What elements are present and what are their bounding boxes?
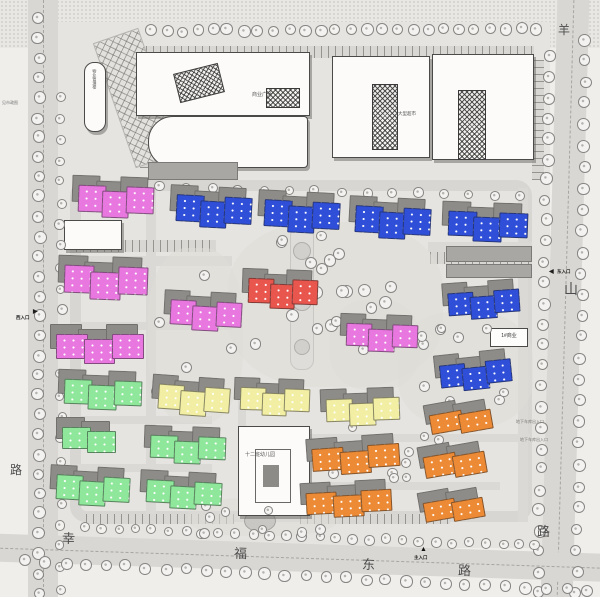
tree-icon	[312, 323, 324, 335]
tree-icon	[366, 302, 377, 313]
tree-icon	[481, 538, 491, 548]
tree-icon	[542, 132, 555, 145]
tree-icon	[579, 161, 591, 173]
tree-icon	[573, 374, 585, 386]
building-unit	[88, 385, 117, 411]
tree-icon	[423, 24, 435, 36]
tree-icon	[581, 585, 593, 597]
tree-icon	[431, 537, 442, 548]
tree-icon	[533, 567, 545, 579]
aux-block	[446, 264, 532, 278]
residential-row	[248, 278, 317, 308]
tree-icon	[161, 564, 173, 576]
tree-icon	[413, 187, 424, 198]
supermarket-label: 大型超市	[398, 112, 416, 117]
building-unit	[102, 477, 130, 503]
tree-icon	[220, 566, 232, 578]
tree-icon	[536, 444, 548, 456]
road-char-bottom-1: 幸	[62, 532, 75, 545]
residential-row	[263, 199, 338, 233]
tree-icon	[499, 540, 508, 549]
residential-row	[77, 185, 152, 218]
building-unit	[484, 358, 513, 384]
tree-icon	[55, 520, 65, 530]
tree-icon	[408, 24, 420, 36]
tree-icon	[573, 482, 584, 493]
tree-icon	[459, 579, 471, 591]
residential-row	[175, 194, 250, 228]
road-char-right-3: 路	[537, 525, 550, 538]
tree-icon	[577, 289, 588, 300]
tree-icon	[420, 577, 431, 588]
building-unit	[56, 334, 88, 359]
tree-icon	[31, 388, 43, 400]
tree-icon	[330, 533, 340, 543]
tree-icon	[32, 527, 44, 539]
tree-icon	[419, 381, 430, 392]
tree-icon	[258, 525, 267, 534]
tree-icon	[535, 401, 548, 414]
building-unit	[224, 197, 253, 225]
tree-icon	[500, 580, 512, 592]
road-char-bottom-3: 东	[362, 558, 375, 571]
tree-icon	[577, 247, 589, 259]
supermarket-skylight	[458, 90, 486, 160]
aux-block	[148, 162, 238, 180]
tree-icon	[453, 332, 464, 343]
building-unit	[215, 302, 243, 328]
tree-icon	[55, 114, 65, 124]
tree-icon	[193, 24, 204, 35]
road-char-left-1: 路	[10, 464, 22, 476]
building-unit	[112, 334, 144, 359]
tree-icon	[268, 26, 279, 37]
tree-icon	[182, 526, 192, 536]
road-char-right-2: 山	[564, 282, 578, 296]
building-unit	[284, 388, 310, 412]
residential-row	[447, 289, 519, 320]
tree-icon	[580, 77, 591, 88]
tree-icon	[479, 579, 491, 591]
tree-icon	[286, 309, 299, 322]
building-unit	[84, 339, 116, 364]
tree-icon	[573, 353, 586, 366]
tree-icon	[55, 157, 65, 167]
tree-icon	[32, 151, 44, 163]
kindergarten-building: 十二班幼儿园	[238, 426, 310, 516]
municipal-note: 见市政图	[2, 100, 18, 106]
site-plan: 物业管理楼 商业广场 大型超市 十二班幼儿园 1#商业 幸 福 东 路 羊 山 …	[0, 0, 600, 597]
aux-block	[446, 246, 532, 262]
tree-icon	[34, 588, 45, 597]
tree-icon	[33, 449, 46, 462]
building-unit	[113, 380, 142, 406]
clubhouse	[64, 220, 122, 250]
tree-icon	[226, 343, 237, 354]
tree-icon	[532, 503, 545, 516]
residential-row	[62, 427, 114, 451]
tree-icon	[285, 24, 296, 35]
garage-entry-note: 地下车库出入口	[520, 437, 548, 443]
building-unit	[493, 288, 521, 313]
tree-icon	[250, 338, 261, 349]
residential-row	[56, 334, 142, 362]
tree-icon	[544, 50, 555, 61]
tree-icon	[364, 535, 374, 545]
tree-icon	[437, 324, 446, 333]
tree-icon	[447, 539, 457, 549]
tree-icon	[490, 191, 500, 201]
tree-icon	[61, 558, 73, 570]
tree-icon	[154, 317, 165, 328]
tree-icon	[154, 181, 164, 191]
tree-icon	[361, 575, 373, 587]
tree-icon	[54, 219, 65, 230]
tree-icon	[574, 394, 586, 406]
tree-icon	[230, 528, 241, 539]
tree-icon	[572, 437, 583, 448]
commercial-label-box: 1#商业	[490, 328, 528, 347]
tree-icon	[336, 285, 349, 298]
tree-icon	[376, 23, 388, 35]
building-unit	[360, 489, 392, 512]
building-unit	[373, 397, 401, 421]
building-unit	[194, 482, 223, 507]
tree-icon	[164, 527, 173, 536]
kindergarten-label: 十二班幼儿园	[245, 453, 275, 459]
tree-icon	[34, 53, 46, 65]
tree-icon	[464, 537, 473, 546]
building-unit	[90, 271, 121, 300]
plaza-label: 商业广场	[252, 93, 272, 99]
tree-icon	[281, 530, 292, 541]
tree-icon	[96, 524, 107, 535]
tree-icon	[468, 24, 479, 35]
tree-icon	[56, 135, 67, 146]
tree-icon	[417, 331, 427, 341]
building-unit	[87, 431, 116, 453]
tree-icon	[32, 369, 44, 381]
tree-icon	[529, 540, 539, 550]
tree-icon	[500, 23, 512, 35]
tree-icon	[315, 25, 327, 37]
tree-icon	[33, 130, 46, 143]
tree-icon	[33, 72, 45, 84]
tree-icon	[579, 54, 591, 66]
tree-icon	[577, 140, 590, 153]
residential-row	[64, 379, 141, 410]
tree-icon	[542, 154, 555, 167]
tree-icon	[538, 276, 550, 288]
tree-icon	[305, 257, 317, 269]
tree-icon	[358, 284, 371, 297]
tree-icon	[575, 268, 587, 280]
tree-icon	[361, 23, 374, 36]
tree-icon	[57, 304, 68, 315]
tree-icon	[34, 231, 47, 244]
tree-icon	[514, 539, 524, 549]
management-label: 物业管理楼	[92, 69, 96, 89]
residential-row	[326, 397, 399, 425]
retail-block-lower	[148, 116, 308, 168]
supermarket-skylight	[372, 84, 398, 150]
east-entrance-label: 东入口	[557, 269, 571, 275]
garden-circle	[294, 339, 310, 355]
tree-icon	[577, 310, 588, 321]
tree-icon	[278, 570, 290, 582]
residential-row	[305, 489, 390, 517]
tree-icon	[119, 559, 131, 571]
road-char-right-1: 羊	[558, 24, 570, 36]
tree-icon	[347, 534, 358, 545]
tree-icon	[337, 188, 347, 198]
west-entrance-arrow-icon: ▶	[33, 308, 38, 315]
tree-icon	[34, 408, 46, 420]
tree-icon	[540, 172, 552, 184]
tree-icon	[379, 574, 390, 585]
tree-icon	[239, 566, 252, 579]
tree-icon	[297, 527, 307, 537]
tree-icon	[440, 578, 452, 590]
residential-row	[157, 384, 229, 417]
residential-row	[150, 435, 225, 464]
residential-row	[240, 387, 309, 415]
tree-icon	[543, 71, 555, 83]
tree-icon	[576, 330, 587, 341]
tree-icon	[420, 432, 429, 441]
tree-icon	[56, 585, 66, 595]
tree-icon	[389, 473, 399, 483]
tree-icon	[101, 560, 112, 571]
road-char-bottom-4: 路	[458, 564, 471, 577]
tree-icon	[482, 324, 492, 334]
south-entrance-label: 主入口	[414, 555, 428, 561]
residential-row	[346, 323, 417, 351]
building-unit	[367, 443, 400, 468]
tree-icon	[573, 415, 585, 427]
residential-row	[63, 265, 146, 300]
tree-icon	[571, 524, 582, 535]
tree-icon	[499, 388, 508, 397]
tree-icon	[573, 459, 586, 472]
residential-row	[354, 205, 429, 239]
building-unit	[312, 202, 341, 230]
tree-icon	[301, 570, 312, 581]
tree-icon	[57, 199, 67, 209]
tree-icon	[439, 189, 449, 199]
building-unit	[472, 217, 502, 243]
tree-icon	[201, 565, 213, 577]
tree-icon	[205, 512, 216, 523]
residential-row	[169, 299, 240, 331]
tree-icon	[340, 571, 352, 583]
tree-icon	[321, 571, 332, 582]
tree-icon	[400, 575, 412, 587]
tree-icon	[31, 113, 43, 125]
tree-icon	[541, 583, 553, 595]
tree-icon	[238, 25, 250, 37]
tree-icon	[139, 563, 151, 575]
kindergarten-core	[263, 465, 279, 487]
building-unit	[403, 208, 432, 236]
tree-icon	[258, 567, 271, 580]
tree-icon	[32, 250, 44, 262]
management-building: 物业管理楼	[84, 62, 106, 132]
tree-icon	[577, 183, 589, 195]
road-char-bottom-2: 福	[234, 547, 247, 560]
residential-row	[55, 474, 128, 506]
tree-icon	[402, 473, 411, 482]
tree-icon	[577, 204, 589, 216]
tree-icon	[578, 34, 591, 47]
tree-icon	[19, 554, 31, 566]
tree-icon	[33, 271, 45, 283]
tree-icon	[33, 506, 46, 519]
tree-icon	[398, 535, 407, 544]
tree-icon	[56, 240, 65, 249]
building-unit	[198, 436, 226, 460]
east-entrance-arrow-icon: ◀	[549, 268, 554, 275]
tree-icon	[181, 563, 193, 575]
tree-icon	[573, 501, 585, 513]
tree-icon	[577, 118, 590, 131]
tree-icon	[543, 93, 555, 105]
tree-icon	[34, 488, 46, 500]
east-road-centerline	[556, 0, 574, 597]
building-unit	[203, 387, 231, 414]
tree-icon	[530, 23, 542, 35]
tree-icon	[575, 224, 588, 237]
building-unit	[499, 212, 529, 238]
building-unit	[391, 324, 418, 348]
tree-icon	[519, 582, 532, 595]
building-unit	[292, 279, 319, 305]
tree-icon	[535, 380, 547, 392]
tree-icon	[515, 191, 525, 201]
tree-icon	[33, 350, 46, 363]
residential-row	[448, 211, 527, 242]
tree-icon	[542, 113, 554, 125]
west-entrance-label: 西入口	[16, 315, 30, 321]
tree-icon	[570, 545, 581, 556]
tree-icon	[299, 25, 312, 38]
tree-icon	[31, 32, 44, 45]
building-unit	[117, 266, 148, 295]
garage-entry-note: 地下车库出入口	[516, 419, 544, 425]
tree-icon	[34, 91, 46, 103]
building-unit	[126, 186, 155, 214]
residential-row	[145, 479, 220, 509]
tree-icon	[578, 96, 590, 108]
south-entrance-arrow-icon: ▲	[420, 546, 427, 553]
tree-icon	[80, 559, 92, 571]
